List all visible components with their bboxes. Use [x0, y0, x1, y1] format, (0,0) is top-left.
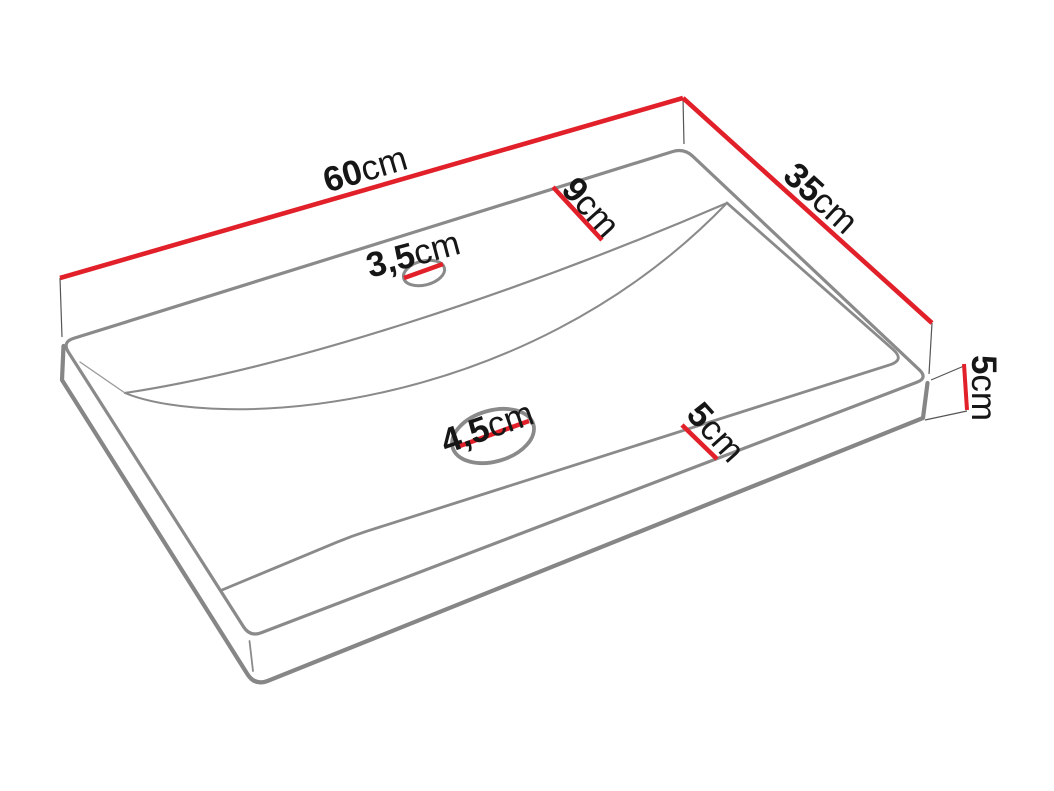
- back-rim-dimension-label: 9cm: [554, 169, 627, 244]
- washbasin-dimension-drawing: 60cm 35cm 9cm 3,5cm 4,5cm 5cm 5cm: [0, 0, 1054, 791]
- basin-top-outline: [66, 151, 923, 634]
- height-extension-bottom: [925, 411, 967, 420]
- height-extension-top: [931, 366, 964, 380]
- basin-left-tip-line: [80, 362, 125, 393]
- front-rim-dimension-label: 5cm: [679, 394, 752, 469]
- washbasin-diagram-canvas: 60cm 35cm 9cm 3,5cm 4,5cm 5cm 5cm: [0, 0, 1054, 791]
- basin-bottom-edge: [62, 346, 928, 682]
- depth-extension-right: [929, 323, 932, 374]
- height-dimension-label: 5cm: [965, 355, 1004, 421]
- width-extension-left: [60, 278, 62, 337]
- front-corner-crease: [250, 641, 254, 671]
- depth-dimension-label: 35cm: [776, 155, 865, 242]
- dimension-labels: 60cm 35cm 9cm 3,5cm 4,5cm 5cm 5cm: [318, 138, 1003, 469]
- corner-extension-apex: [683, 98, 684, 144]
